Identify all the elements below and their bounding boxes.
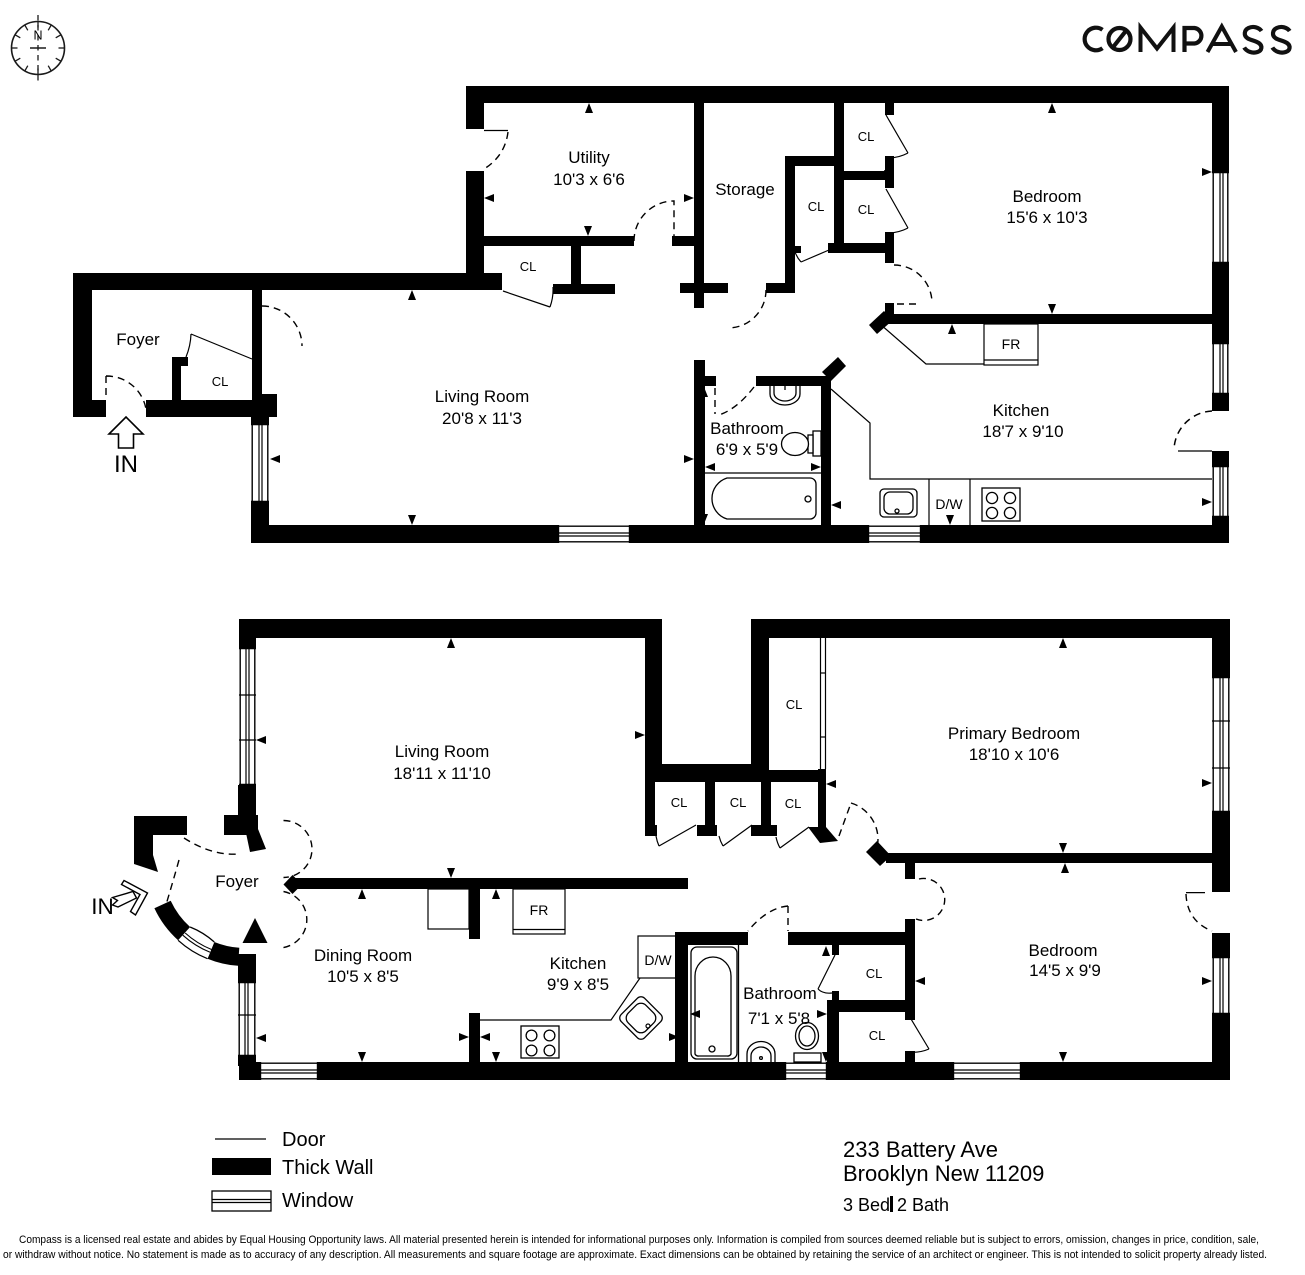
svg-text:FR: FR [1002, 336, 1021, 352]
svg-text:D/W: D/W [935, 496, 963, 512]
svg-text:Kitchen: Kitchen [993, 401, 1050, 420]
svg-text:CL: CL [212, 374, 229, 389]
svg-text:CL: CL [671, 795, 688, 810]
svg-text:14'5 x 9'9: 14'5 x 9'9 [1029, 961, 1101, 980]
svg-text:CL: CL [520, 259, 537, 274]
svg-text:Living Room: Living Room [395, 742, 490, 761]
svg-text:Dining Room: Dining Room [314, 946, 412, 965]
svg-text:9'9 x 8'5: 9'9 x 8'5 [547, 975, 609, 994]
svg-text:2 Bath: 2 Bath [897, 1195, 949, 1215]
svg-text:3 Bed: 3 Bed [843, 1195, 890, 1215]
svg-text:Bedroom: Bedroom [1029, 941, 1098, 960]
svg-text:Foyer: Foyer [215, 872, 259, 891]
svg-text:CL: CL [858, 202, 875, 217]
svg-text:CL: CL [808, 199, 825, 214]
svg-text:Bathroom: Bathroom [743, 984, 817, 1003]
svg-text:CL: CL [866, 966, 883, 981]
svg-text:10'5 x 8'5: 10'5 x 8'5 [327, 967, 399, 986]
svg-text:Door: Door [282, 1129, 326, 1151]
svg-text:18'10 x 10'6: 18'10 x 10'6 [969, 745, 1060, 764]
svg-text:18'7 x 9'10: 18'7 x 9'10 [982, 422, 1063, 441]
svg-text:N: N [33, 29, 42, 43]
svg-text:Living Room: Living Room [435, 387, 530, 406]
svg-text:20'8 x 11'3: 20'8 x 11'3 [442, 409, 522, 428]
svg-text:Primary Bedroom: Primary Bedroom [948, 724, 1080, 743]
svg-text:Bathroom: Bathroom [710, 419, 784, 438]
svg-text:Thick Wall: Thick Wall [282, 1157, 373, 1179]
svg-text:6'9 x 5'9: 6'9 x 5'9 [716, 440, 778, 459]
svg-text:7'1 x 5'8: 7'1 x 5'8 [748, 1009, 810, 1028]
svg-text:Utility: Utility [568, 148, 610, 167]
svg-text:CL: CL [785, 796, 802, 811]
svg-text:Window: Window [282, 1190, 354, 1212]
svg-text:233 Battery Ave: 233 Battery Ave [843, 1137, 998, 1162]
svg-text:CL: CL [730, 795, 747, 810]
svg-text:18'11 x 11'10: 18'11 x 11'10 [393, 764, 491, 783]
svg-text:CL: CL [869, 1028, 886, 1043]
svg-text:Brooklyn New 11209: Brooklyn New 11209 [843, 1161, 1044, 1186]
svg-text:10'3 x 6'6: 10'3 x 6'6 [553, 170, 625, 189]
svg-text:Kitchen: Kitchen [550, 954, 607, 973]
svg-text:IN: IN [91, 894, 114, 919]
svg-text:FR: FR [530, 902, 549, 918]
svg-text:CL: CL [786, 697, 803, 712]
svg-text:Compass is a licensed real est: Compass is a licensed real estate and ab… [19, 1234, 1259, 1246]
svg-text:or withdraw without notice. No: or withdraw without notice. No statement… [3, 1249, 1267, 1261]
svg-text:D/W: D/W [644, 952, 672, 968]
svg-text:CL: CL [858, 129, 875, 144]
svg-text:Storage: Storage [715, 180, 775, 199]
svg-text:Foyer: Foyer [116, 330, 160, 349]
svg-text:IN: IN [114, 451, 138, 478]
svg-text:15'6 x 10'3: 15'6 x 10'3 [1006, 208, 1087, 227]
svg-text:Bedroom: Bedroom [1013, 187, 1082, 206]
